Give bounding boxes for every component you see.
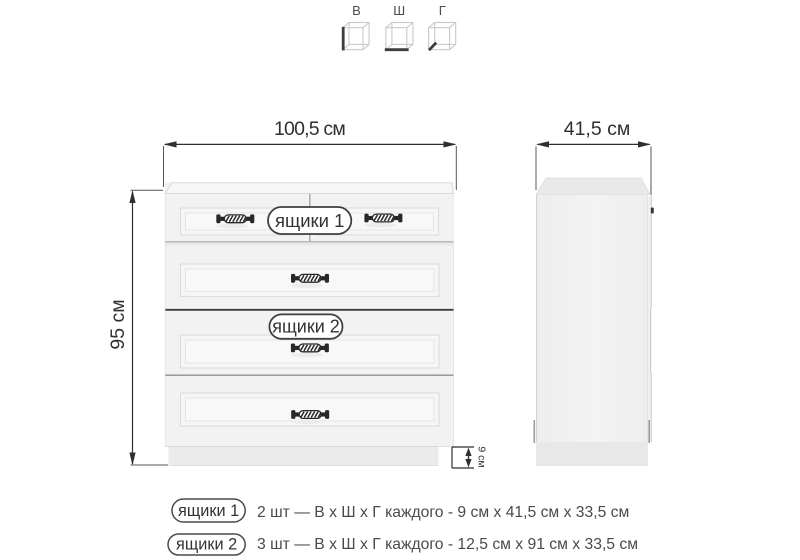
svg-text:В: В [352,3,361,18]
svg-text:ящики 1: ящики 1 [178,502,239,520]
svg-text:ящики 1: ящики 1 [275,210,344,231]
svg-text:ящики 2: ящики 2 [176,536,237,554]
svg-text:95 см: 95 см [107,299,129,349]
svg-text:9 см: 9 см [476,446,488,467]
svg-text:100,5 см: 100,5 см [274,118,345,140]
svg-text:41,5 см: 41,5 см [564,118,631,140]
svg-text:3 шт — В х Ш х Г каждого - 12,: 3 шт — В х Ш х Г каждого - 12,5 см х 91 … [257,536,638,553]
svg-text:Г: Г [439,3,446,18]
svg-text:2 шт — В х Ш х Г каждого - 9 с: 2 шт — В х Ш х Г каждого - 9 см х 41,5 с… [257,504,629,521]
svg-text:Ш: Ш [393,3,405,18]
svg-text:ящики 2: ящики 2 [272,317,340,337]
